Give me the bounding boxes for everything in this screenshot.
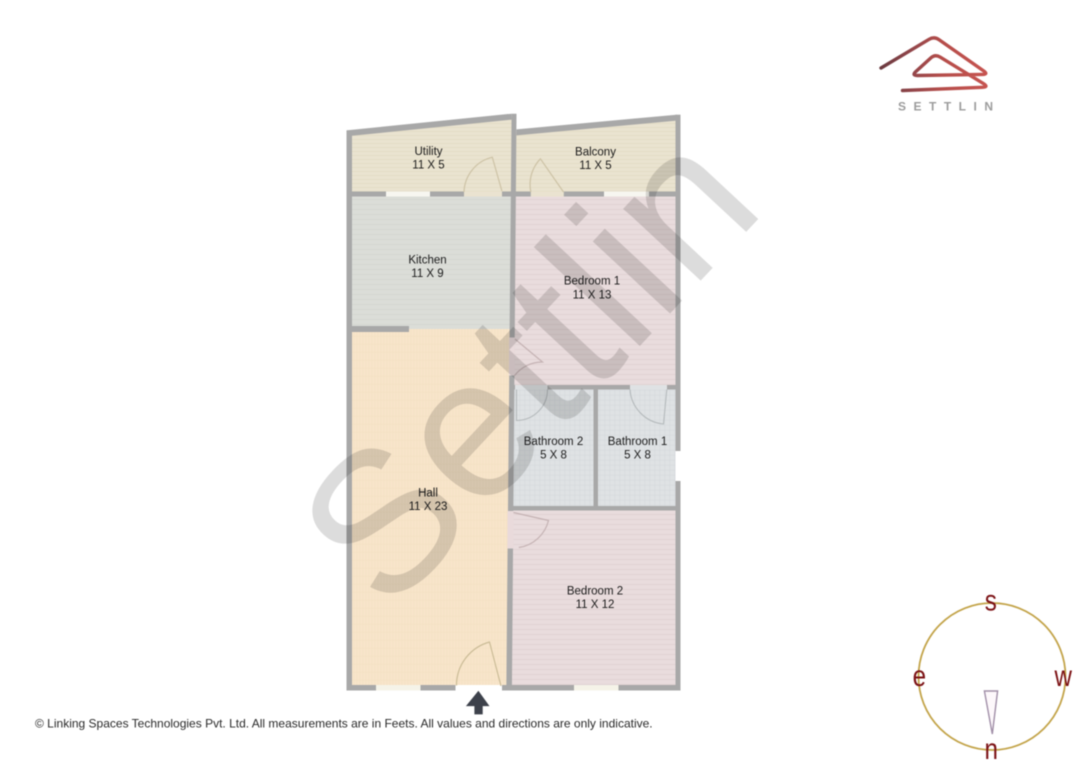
svg-text:© Linking Spaces Technologies: © Linking Spaces Technologies Pvt. Ltd. … <box>35 717 653 731</box>
svg-text:11 X 5: 11 X 5 <box>412 160 444 172</box>
svg-text:n: n <box>984 733 997 764</box>
svg-text:e: e <box>913 660 926 693</box>
svg-text:Bathroom 1: Bathroom 1 <box>608 436 667 448</box>
svg-text:SETTLIN: SETTLIN <box>898 100 1001 114</box>
svg-text:Bedroom 2: Bedroom 2 <box>567 586 623 598</box>
svg-text:s: s <box>985 584 997 617</box>
svg-text:w: w <box>1054 660 1073 693</box>
svg-text:11 X 9: 11 X 9 <box>411 268 443 280</box>
svg-text:Kitchen: Kitchen <box>408 255 446 267</box>
svg-text:Utility: Utility <box>414 146 442 158</box>
svg-text:5 X 8: 5 X 8 <box>624 449 651 461</box>
svg-text:11 X 12: 11 X 12 <box>576 599 615 611</box>
